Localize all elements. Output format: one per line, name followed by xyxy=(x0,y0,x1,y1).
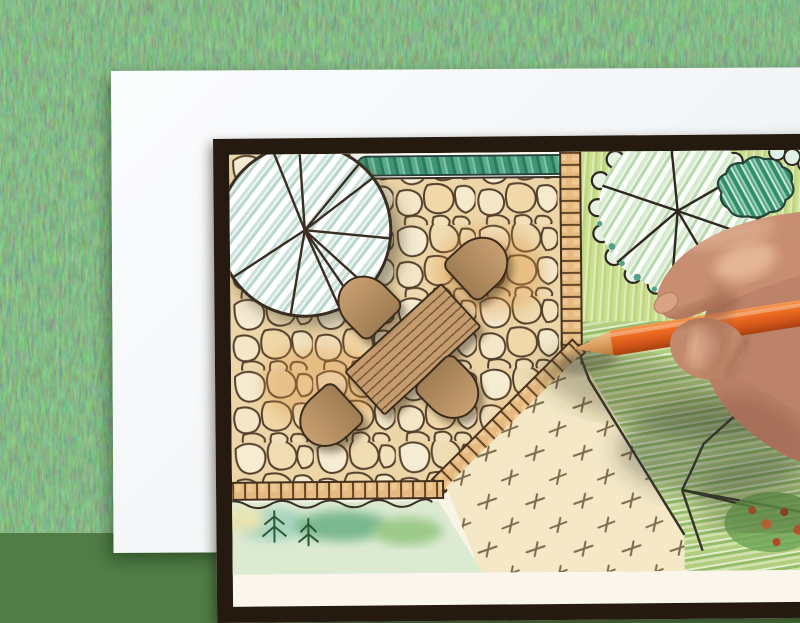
photo-canvas: { "scene": { "type": "photograph", "desc… xyxy=(0,0,800,533)
plan-drawing-area xyxy=(229,149,800,574)
striped-shrub xyxy=(718,157,794,218)
plan-drawing xyxy=(229,149,800,574)
hedge-strip xyxy=(347,152,577,180)
bottom-shrub-bed xyxy=(229,499,483,575)
garden-plan-sheet xyxy=(213,133,800,623)
